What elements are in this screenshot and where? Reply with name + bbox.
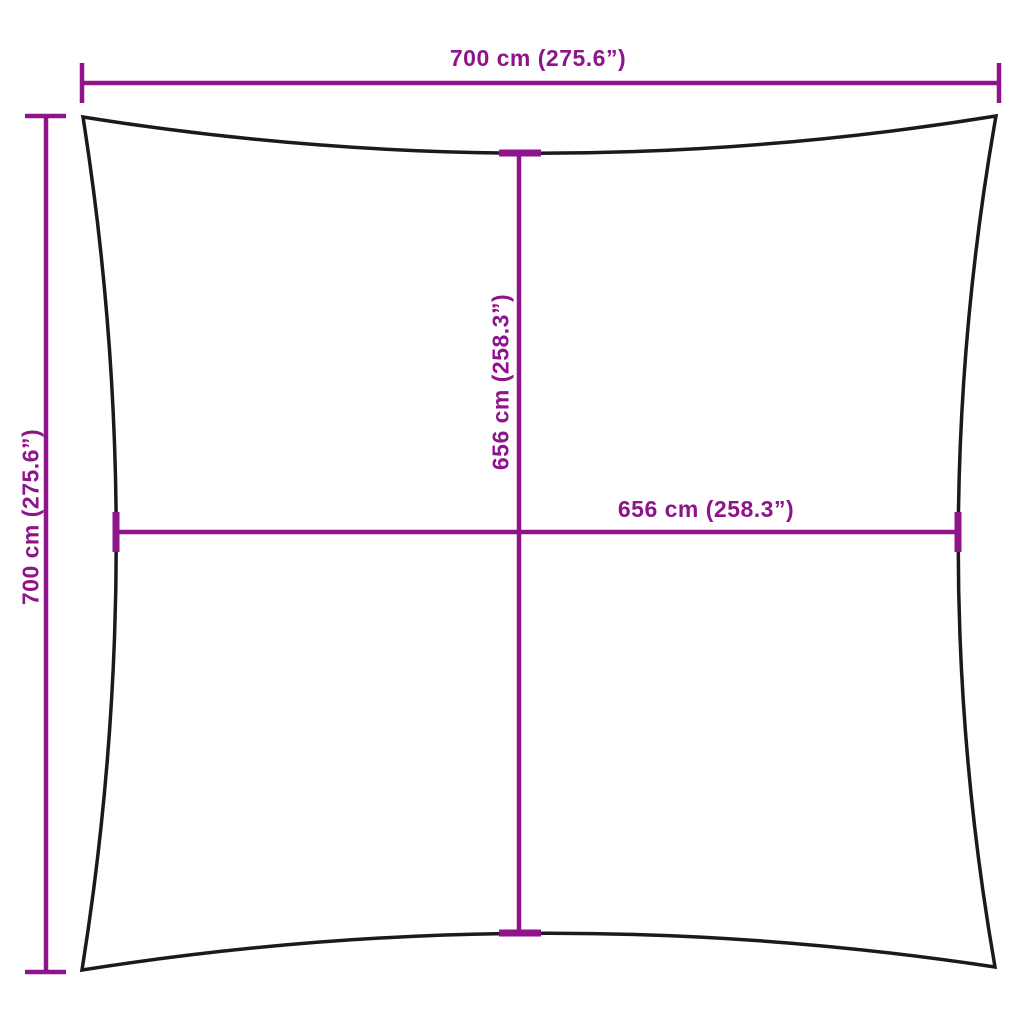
outer-height-label: 700 cm (275.6”)	[18, 429, 45, 605]
outer-width-label: 700 cm (275.6”)	[450, 45, 626, 72]
inner-width-label: 656 cm (258.3”)	[618, 496, 794, 523]
shade-sail-dimension-diagram: 700 cm (275.6”) 700 cm (275.6”) 656 cm (…	[0, 0, 1024, 1024]
diagram-drawing	[0, 0, 1024, 1024]
inner-height-label: 656 cm (258.3”)	[488, 294, 515, 470]
shade-sail-outline	[82, 116, 996, 970]
